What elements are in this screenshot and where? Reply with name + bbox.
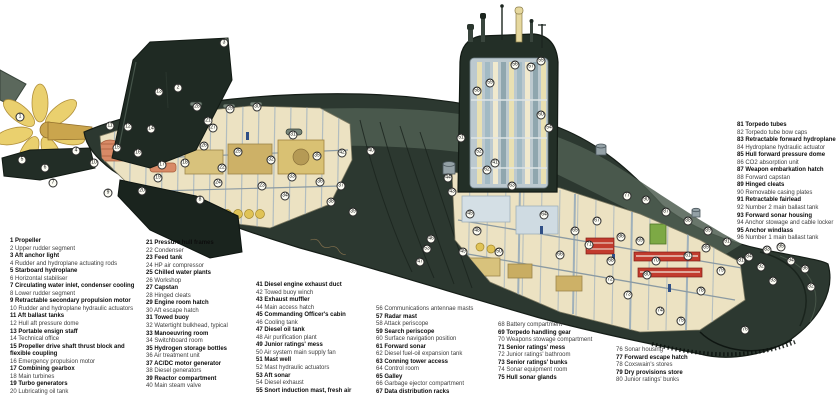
figure-canvas: 1234567891011121314151617181920212223242… [0,0,840,404]
snort-induction-mast [516,12,522,42]
attack-periscope-mast [481,18,485,42]
submarine-cutaway-art [0,0,840,404]
search-periscope-mast [530,22,533,42]
forward-mast [468,28,473,42]
starboard-hydroplane [2,148,95,180]
aft-anchor-light [224,38,228,42]
sail [458,34,558,192]
